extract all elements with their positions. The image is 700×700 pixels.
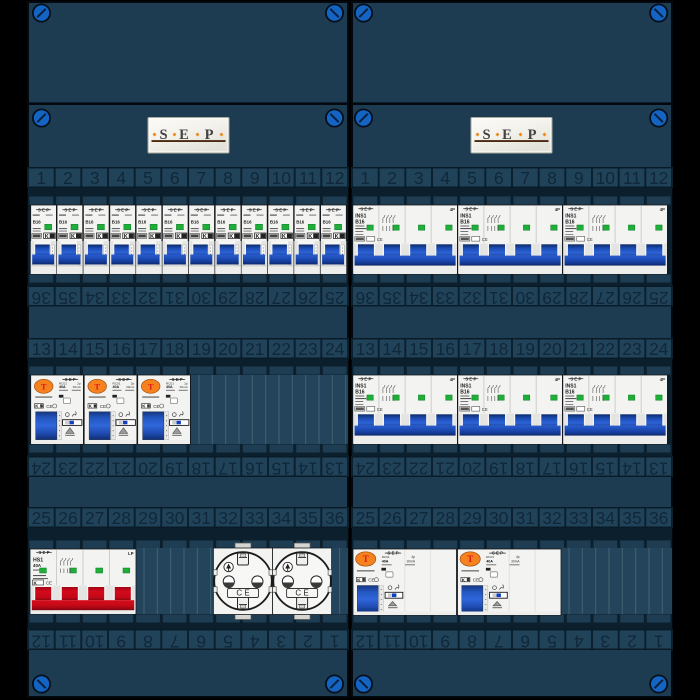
svg-text:29: 29: [462, 508, 481, 528]
svg-text:8: 8: [143, 631, 153, 651]
svg-text:8: 8: [223, 168, 233, 188]
svg-text:C E: C E: [295, 589, 308, 598]
svg-text:33: 33: [112, 288, 131, 308]
svg-text:19: 19: [516, 339, 535, 359]
svg-text:30mA: 30mA: [126, 385, 135, 389]
svg-text:34: 34: [596, 508, 616, 528]
svg-text:15: 15: [272, 458, 291, 478]
svg-text:T: T: [41, 381, 47, 391]
svg-text:27: 27: [85, 508, 104, 528]
svg-text:B16: B16: [296, 220, 305, 225]
svg-text:18: 18: [516, 458, 535, 478]
svg-text:CE: CE: [368, 578, 374, 583]
svg-text:21: 21: [245, 339, 264, 359]
svg-text:32: 32: [462, 288, 481, 308]
svg-text:35: 35: [622, 508, 641, 528]
svg-text:14: 14: [58, 339, 78, 359]
svg-text:16: 16: [112, 339, 131, 359]
svg-text:12: 12: [356, 631, 375, 651]
svg-text:22: 22: [409, 458, 428, 478]
svg-text:17: 17: [138, 339, 157, 359]
svg-text:·S·E·P·: ·S·E·P·: [168, 207, 182, 212]
svg-text:4P: 4P: [555, 377, 560, 382]
svg-text:33: 33: [569, 508, 588, 528]
svg-text:8: 8: [467, 631, 477, 651]
svg-text:K: K: [176, 234, 180, 240]
svg-text:12: 12: [649, 168, 668, 188]
svg-text:CE: CE: [587, 407, 593, 412]
svg-text:4P: 4P: [660, 207, 665, 212]
svg-text:·S·E·P·: ·S·E·P·: [63, 207, 77, 212]
svg-text:8: 8: [547, 168, 557, 188]
svg-text:9: 9: [440, 631, 450, 651]
svg-text:B16: B16: [460, 390, 469, 396]
svg-text:K: K: [45, 234, 49, 240]
svg-text:24: 24: [31, 458, 51, 478]
svg-text:K: K: [256, 234, 260, 240]
svg-text:36: 36: [325, 508, 344, 528]
svg-text:24: 24: [355, 458, 375, 478]
svg-text:5: 5: [143, 168, 153, 188]
svg-text:25: 25: [32, 508, 51, 528]
svg-text:17: 17: [218, 458, 237, 478]
svg-text:31: 31: [165, 288, 184, 308]
svg-text:CE: CE: [587, 237, 593, 242]
svg-text:3: 3: [414, 168, 424, 188]
svg-text:22: 22: [272, 339, 291, 359]
svg-text:24: 24: [325, 339, 345, 359]
svg-text:B16: B16: [138, 220, 147, 225]
svg-text:10: 10: [85, 631, 105, 651]
svg-text:23: 23: [298, 339, 317, 359]
svg-text:3: 3: [90, 168, 100, 188]
svg-text:29: 29: [218, 288, 237, 308]
svg-text:RC01: RC01: [486, 555, 494, 559]
svg-text:2: 2: [303, 631, 313, 651]
svg-text:K: K: [150, 234, 154, 240]
svg-text:18: 18: [489, 339, 508, 359]
svg-text:·S·E·P·: ·S·E·P·: [221, 207, 235, 212]
svg-text:16: 16: [245, 458, 264, 478]
svg-text:·S·E·P·: ·S·E·P·: [300, 207, 314, 212]
svg-text:T: T: [94, 381, 100, 391]
svg-text:29: 29: [542, 288, 561, 308]
svg-text:T: T: [148, 381, 154, 391]
svg-text:·S·E·P·: ·S·E·P·: [116, 207, 130, 212]
svg-text:·S·E·P·: ·S·E·P·: [37, 550, 51, 555]
svg-text:21: 21: [569, 339, 588, 359]
svg-text:32: 32: [218, 508, 237, 528]
svg-text:27: 27: [272, 288, 291, 308]
svg-text:CE: CE: [46, 404, 52, 409]
svg-text:4P: 4P: [555, 207, 560, 212]
svg-text:30: 30: [515, 288, 535, 308]
svg-text:5: 5: [547, 631, 557, 651]
svg-text:·S·E·P·: ·S·E·P·: [359, 376, 373, 381]
svg-text:13: 13: [649, 458, 668, 478]
svg-text:30mA: 30mA: [407, 559, 416, 563]
svg-text:34: 34: [272, 508, 292, 528]
svg-text:19: 19: [489, 458, 508, 478]
svg-text:13: 13: [325, 458, 344, 478]
svg-text:4: 4: [116, 168, 126, 188]
svg-text:23: 23: [58, 458, 77, 478]
svg-text:B16: B16: [33, 220, 42, 225]
svg-text:B16: B16: [565, 220, 574, 226]
svg-text:7: 7: [494, 631, 504, 651]
svg-text:CE: CE: [153, 404, 159, 409]
svg-text:B16: B16: [244, 220, 253, 225]
svg-text:7: 7: [520, 168, 530, 188]
svg-text:K: K: [203, 234, 207, 240]
svg-text:35: 35: [382, 288, 401, 308]
svg-text:30: 30: [191, 288, 211, 308]
svg-text:25: 25: [356, 508, 375, 528]
svg-text:13: 13: [356, 339, 375, 359]
svg-text:12: 12: [325, 168, 344, 188]
svg-text:11: 11: [383, 631, 401, 651]
svg-text:36: 36: [32, 288, 51, 308]
svg-text:11: 11: [299, 168, 317, 188]
svg-text:6: 6: [520, 631, 530, 651]
svg-text:4P: 4P: [660, 377, 665, 382]
svg-text:·S·E·P·: ·S·E·P·: [569, 206, 583, 211]
svg-text:·S·E·P·: ·S·E·P·: [195, 207, 209, 212]
svg-text:K: K: [282, 234, 286, 240]
svg-text:30: 30: [489, 508, 509, 528]
svg-text:K: K: [335, 234, 339, 240]
svg-text:26: 26: [382, 508, 401, 528]
svg-text:·S·E·P·: ·S·E·P·: [464, 206, 478, 211]
svg-text:7: 7: [196, 168, 206, 188]
svg-text:11: 11: [623, 168, 641, 188]
svg-text:31: 31: [489, 288, 508, 308]
svg-text:14: 14: [622, 458, 642, 478]
svg-text:30mA: 30mA: [511, 559, 520, 563]
svg-text:9: 9: [574, 168, 584, 188]
svg-text:1: 1: [330, 631, 340, 651]
svg-text:K: K: [124, 234, 128, 240]
svg-text:6: 6: [170, 168, 180, 188]
svg-text:14: 14: [298, 458, 318, 478]
svg-text:20: 20: [138, 458, 158, 478]
svg-text:6: 6: [196, 631, 206, 651]
svg-text:20: 20: [542, 339, 562, 359]
svg-text:35: 35: [58, 288, 77, 308]
svg-text:10: 10: [272, 168, 292, 188]
svg-text:9: 9: [116, 631, 126, 651]
svg-text:20: 20: [218, 339, 238, 359]
svg-text:K: K: [229, 234, 233, 240]
svg-text:1: 1: [360, 168, 370, 188]
svg-text:CE: CE: [473, 578, 479, 583]
svg-text:27: 27: [596, 288, 615, 308]
svg-text:B16: B16: [85, 220, 94, 225]
svg-text:CE: CE: [482, 407, 488, 412]
svg-text:11: 11: [59, 631, 77, 651]
svg-text:B16: B16: [112, 220, 121, 225]
svg-text:C E: C E: [236, 589, 249, 598]
svg-text:·S·E·P·: ·S·E·P·: [359, 206, 373, 211]
svg-text:16: 16: [436, 339, 455, 359]
svg-text:18: 18: [192, 458, 211, 478]
svg-text:31: 31: [192, 508, 211, 528]
svg-text:B16: B16: [355, 220, 364, 226]
svg-text:CE: CE: [100, 404, 106, 409]
svg-text:33: 33: [436, 288, 455, 308]
svg-text:5: 5: [467, 168, 477, 188]
svg-text:4: 4: [250, 631, 260, 651]
svg-text:32: 32: [542, 508, 561, 528]
svg-text:27: 27: [409, 508, 428, 528]
svg-text:CE: CE: [377, 237, 383, 242]
svg-text:CE: CE: [46, 581, 52, 586]
svg-text:·S·E·P·: ·S·E·P·: [142, 207, 156, 212]
svg-text:34: 34: [85, 288, 105, 308]
svg-text:40A: 40A: [382, 559, 389, 563]
svg-text:33: 33: [245, 508, 264, 528]
svg-text:B16: B16: [565, 390, 574, 396]
svg-text:·S·E·P·: ·S·E·P·: [327, 207, 341, 212]
svg-text:30mA: 30mA: [180, 385, 189, 389]
svg-text:4P: 4P: [450, 377, 455, 382]
svg-text:T: T: [363, 554, 369, 564]
svg-text:9: 9: [250, 168, 260, 188]
svg-text:7: 7: [170, 631, 180, 651]
svg-text:1: 1: [654, 631, 664, 651]
svg-text:·S·E·P·: ·S·E·P·: [89, 207, 103, 212]
svg-text:3: 3: [600, 631, 610, 651]
svg-text:36: 36: [356, 288, 375, 308]
svg-text:B16: B16: [323, 220, 332, 225]
svg-text:10: 10: [596, 168, 616, 188]
svg-text:22: 22: [596, 339, 615, 359]
svg-text:28: 28: [436, 508, 455, 528]
svg-text:4p: 4p: [411, 555, 415, 559]
svg-text:26: 26: [58, 508, 77, 528]
svg-text:K: K: [308, 234, 312, 240]
svg-text:CE: CE: [482, 237, 488, 242]
svg-text:B16: B16: [217, 220, 226, 225]
svg-text:23: 23: [622, 339, 641, 359]
svg-text:B16: B16: [355, 390, 364, 396]
svg-text:2: 2: [387, 168, 397, 188]
svg-text:10: 10: [409, 631, 429, 651]
svg-text:2: 2: [63, 168, 73, 188]
svg-text:K: K: [71, 234, 75, 240]
svg-text:36: 36: [649, 508, 668, 528]
svg-text:30: 30: [165, 508, 185, 528]
svg-text:13: 13: [32, 339, 51, 359]
svg-text:CE: CE: [377, 407, 383, 412]
svg-text:T: T: [467, 554, 473, 564]
svg-text:4P: 4P: [450, 207, 455, 212]
svg-text:B16: B16: [59, 220, 68, 225]
svg-text:15: 15: [409, 339, 428, 359]
svg-text:32: 32: [138, 288, 157, 308]
svg-text:·S·E·P·: ·S·E·P·: [569, 376, 583, 381]
svg-text:22: 22: [85, 458, 104, 478]
svg-text:B16: B16: [460, 220, 469, 226]
svg-text:B16: B16: [191, 220, 200, 225]
svg-text:28: 28: [112, 508, 131, 528]
svg-text:31: 31: [516, 508, 535, 528]
svg-text:40A: 40A: [33, 563, 42, 568]
svg-text:34: 34: [409, 288, 429, 308]
svg-text:RC01: RC01: [382, 555, 390, 559]
svg-text:B16: B16: [164, 220, 173, 225]
svg-text:25: 25: [649, 288, 668, 308]
svg-text:17: 17: [542, 458, 561, 478]
svg-text:2: 2: [627, 631, 637, 651]
svg-text:18: 18: [165, 339, 184, 359]
svg-text:6: 6: [494, 168, 504, 188]
svg-text:25: 25: [325, 288, 344, 308]
svg-text:15: 15: [85, 339, 104, 359]
svg-text:24: 24: [649, 339, 669, 359]
svg-text:26: 26: [298, 288, 317, 308]
svg-text:16: 16: [569, 458, 588, 478]
svg-text:29: 29: [138, 508, 157, 528]
svg-text:12: 12: [32, 631, 51, 651]
svg-text:LP: LP: [128, 551, 134, 556]
svg-text:40A: 40A: [166, 385, 173, 389]
svg-text:·S·E·P·: ·S·E·P·: [37, 207, 51, 212]
svg-text:35: 35: [298, 508, 317, 528]
svg-text:14: 14: [382, 339, 402, 359]
svg-text:40A: 40A: [113, 385, 120, 389]
svg-text:3: 3: [276, 631, 286, 651]
svg-text:4p: 4p: [516, 555, 520, 559]
svg-text:19: 19: [165, 458, 184, 478]
svg-text:15: 15: [596, 458, 615, 478]
svg-text:30mA: 30mA: [73, 385, 82, 389]
svg-text:28: 28: [245, 288, 264, 308]
svg-text:·S·E·P·: ·S·E·P·: [274, 207, 288, 212]
svg-text:4: 4: [440, 168, 450, 188]
svg-text:B16: B16: [270, 220, 279, 225]
svg-text:19: 19: [192, 339, 211, 359]
svg-text:4: 4: [574, 631, 584, 651]
svg-text:K: K: [97, 234, 101, 240]
svg-text:5: 5: [223, 631, 233, 651]
svg-text:20: 20: [462, 458, 482, 478]
svg-text:28: 28: [569, 288, 588, 308]
svg-text:40A: 40A: [486, 559, 493, 563]
svg-text:23: 23: [382, 458, 401, 478]
svg-text:40A: 40A: [59, 385, 66, 389]
svg-text:17: 17: [462, 339, 481, 359]
svg-text:·S·E·P·: ·S·E·P·: [247, 207, 261, 212]
svg-text:21: 21: [112, 458, 131, 478]
svg-text:21: 21: [436, 458, 455, 478]
svg-text:·S·E·P·: ·S·E·P·: [464, 376, 478, 381]
svg-text:1: 1: [36, 168, 46, 188]
svg-text:26: 26: [622, 288, 641, 308]
